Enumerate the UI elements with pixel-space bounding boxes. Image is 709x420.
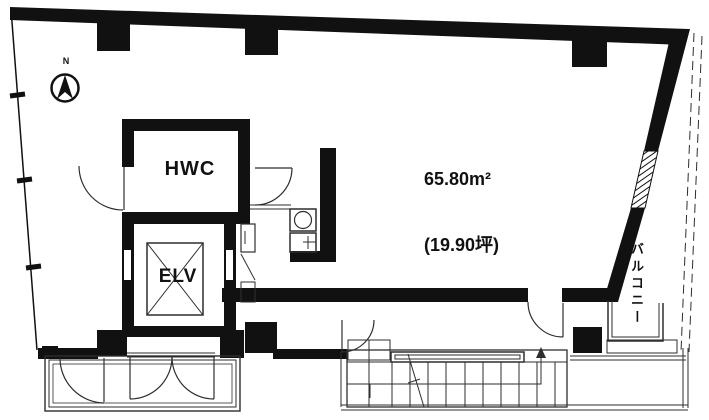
boundary-tick-3 <box>26 266 41 268</box>
floor-area-sqm: 65.80m² <box>424 168 499 190</box>
right-wall-upper <box>644 29 690 151</box>
boundary-line <box>10 9 41 350</box>
room-bottom-wall-right <box>562 288 610 302</box>
floor-area-tsubo: (19.90坪) <box>424 234 499 256</box>
elv-room-label: ELV <box>138 266 218 288</box>
north-label: N <box>58 56 74 66</box>
cabinet <box>241 224 255 252</box>
stove-counter <box>290 209 316 231</box>
bottom-wall-band-right <box>273 349 347 359</box>
boundary-end-block <box>42 346 58 356</box>
elv-door-gap-left <box>124 250 131 280</box>
balcony-edge-outer-2 <box>689 36 702 352</box>
bottom-right-column <box>573 327 602 353</box>
window-hatched <box>631 151 658 208</box>
boundary-tick-1 <box>10 94 25 96</box>
top-column-1 <box>97 17 130 51</box>
top-column-2 <box>245 22 278 55</box>
floor-plan-drawing <box>0 0 709 420</box>
hwc-room-label: HWC <box>150 158 230 181</box>
balcony-label: バルコニー <box>627 242 646 327</box>
corridor-door <box>528 302 563 337</box>
sink-circle <box>295 212 312 229</box>
floor-plan: N HWC ELV 65.80m² (19.90坪) バルコニー <box>0 0 709 420</box>
entrance-single-door <box>60 358 104 403</box>
hwc-door <box>79 166 124 210</box>
bottom-column-3 <box>247 330 273 351</box>
handrail <box>391 352 524 362</box>
north-arrow-icon <box>52 75 79 102</box>
boundary-tick-2 <box>17 179 32 181</box>
balcony-edge-outer-1 <box>681 33 694 352</box>
balcony-step-box <box>607 340 677 353</box>
staircase <box>341 340 688 410</box>
entrance-porch <box>45 353 240 411</box>
top-column-3 <box>572 34 607 67</box>
cabinet-diagonal <box>241 254 255 280</box>
elv-door-gap-right <box>226 250 233 280</box>
outer-walls <box>10 7 690 359</box>
entrance-double-door <box>130 357 214 399</box>
kitchen-partition-wall <box>320 148 336 262</box>
kitchen-door <box>255 168 292 205</box>
floor-area-label: 65.80m² (19.90坪) <box>424 124 499 300</box>
